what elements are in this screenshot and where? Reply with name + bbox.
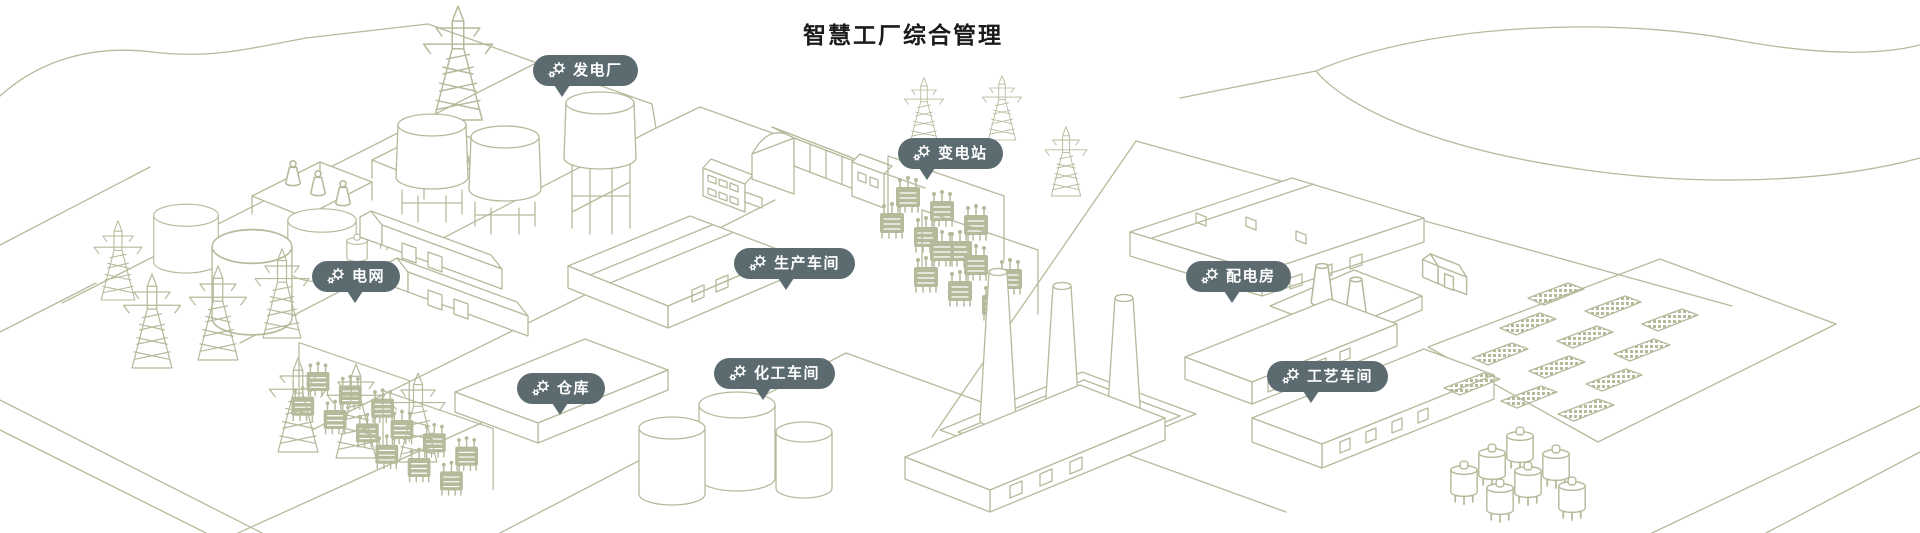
gears-icon bbox=[1282, 368, 1299, 385]
marker-production-workshop[interactable]: 生产车间 bbox=[734, 248, 855, 279]
gears-icon bbox=[532, 380, 549, 397]
marker-label: 发电厂 bbox=[573, 63, 623, 78]
marker-label: 生产车间 bbox=[774, 256, 840, 271]
grid-transformer-yard bbox=[291, 343, 493, 496]
marker-process-workshop[interactable]: 工艺车间 bbox=[1267, 361, 1388, 392]
gears-icon bbox=[327, 268, 344, 285]
gears-icon bbox=[1201, 268, 1218, 285]
power-plant-cooling-towers bbox=[396, 92, 636, 234]
marker-power-plant[interactable]: 发电厂 bbox=[533, 55, 638, 86]
marker-warehouse[interactable]: 仓库 bbox=[517, 373, 605, 404]
process-vessels bbox=[1451, 427, 1585, 522]
marker-label: 配电房 bbox=[1226, 269, 1276, 284]
marker-chemical-workshop[interactable]: 化工车间 bbox=[714, 358, 835, 389]
marker-label: 电网 bbox=[352, 269, 385, 284]
arched-factory bbox=[703, 127, 892, 212]
gears-icon bbox=[729, 365, 746, 382]
marker-substation[interactable]: 变电站 bbox=[898, 138, 1003, 169]
page-title: 智慧工厂综合管理 bbox=[803, 16, 1003, 50]
marker-label: 仓库 bbox=[557, 381, 590, 396]
marker-label: 工艺车间 bbox=[1307, 369, 1373, 384]
factory-illustration bbox=[0, 0, 1920, 533]
gears-icon bbox=[913, 145, 930, 162]
marker-label: 变电站 bbox=[938, 146, 988, 161]
marker-power-grid[interactable]: 电网 bbox=[312, 261, 400, 292]
marker-distribution-room[interactable]: 配电房 bbox=[1186, 261, 1291, 292]
chemical-tanks bbox=[639, 392, 832, 505]
gears-icon bbox=[749, 255, 766, 272]
marker-label: 化工车间 bbox=[754, 366, 820, 381]
smart-factory-dashboard: 智慧工厂综合管理 发电厂 变电站 电网 生产车间 配电房 仓库 化工车间 工艺车… bbox=[0, 0, 1920, 533]
gears-icon bbox=[548, 62, 565, 79]
